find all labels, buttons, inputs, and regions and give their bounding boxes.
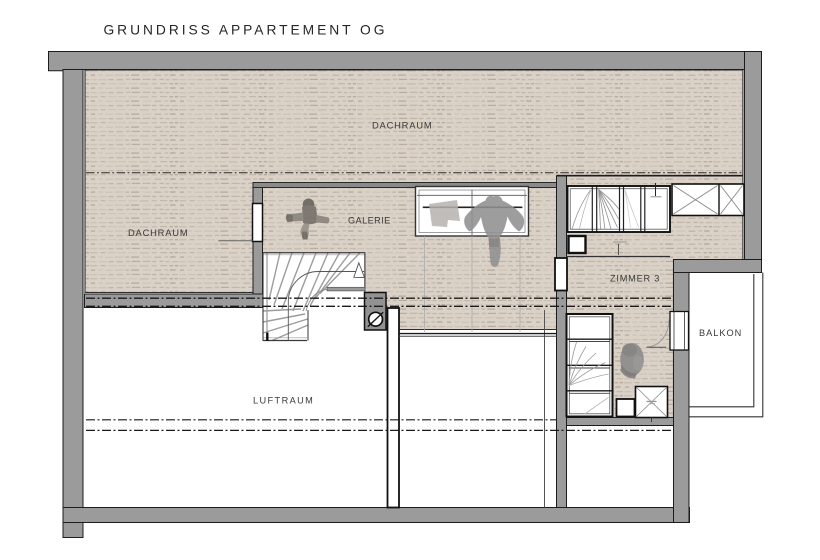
svg-text:LUFTRAUM: LUFTRAUM	[253, 396, 314, 406]
svg-text:ZIMMER 3: ZIMMER 3	[610, 274, 660, 284]
svg-text:BALKON: BALKON	[699, 328, 742, 338]
svg-text:GRUNDRISS APPARTEMENT OG: GRUNDRISS APPARTEMENT OG	[104, 23, 388, 38]
svg-text:DACHRAUM: DACHRAUM	[128, 227, 188, 238]
svg-text:GALERIE: GALERIE	[348, 216, 391, 226]
svg-text:DACHRAUM: DACHRAUM	[372, 120, 432, 131]
